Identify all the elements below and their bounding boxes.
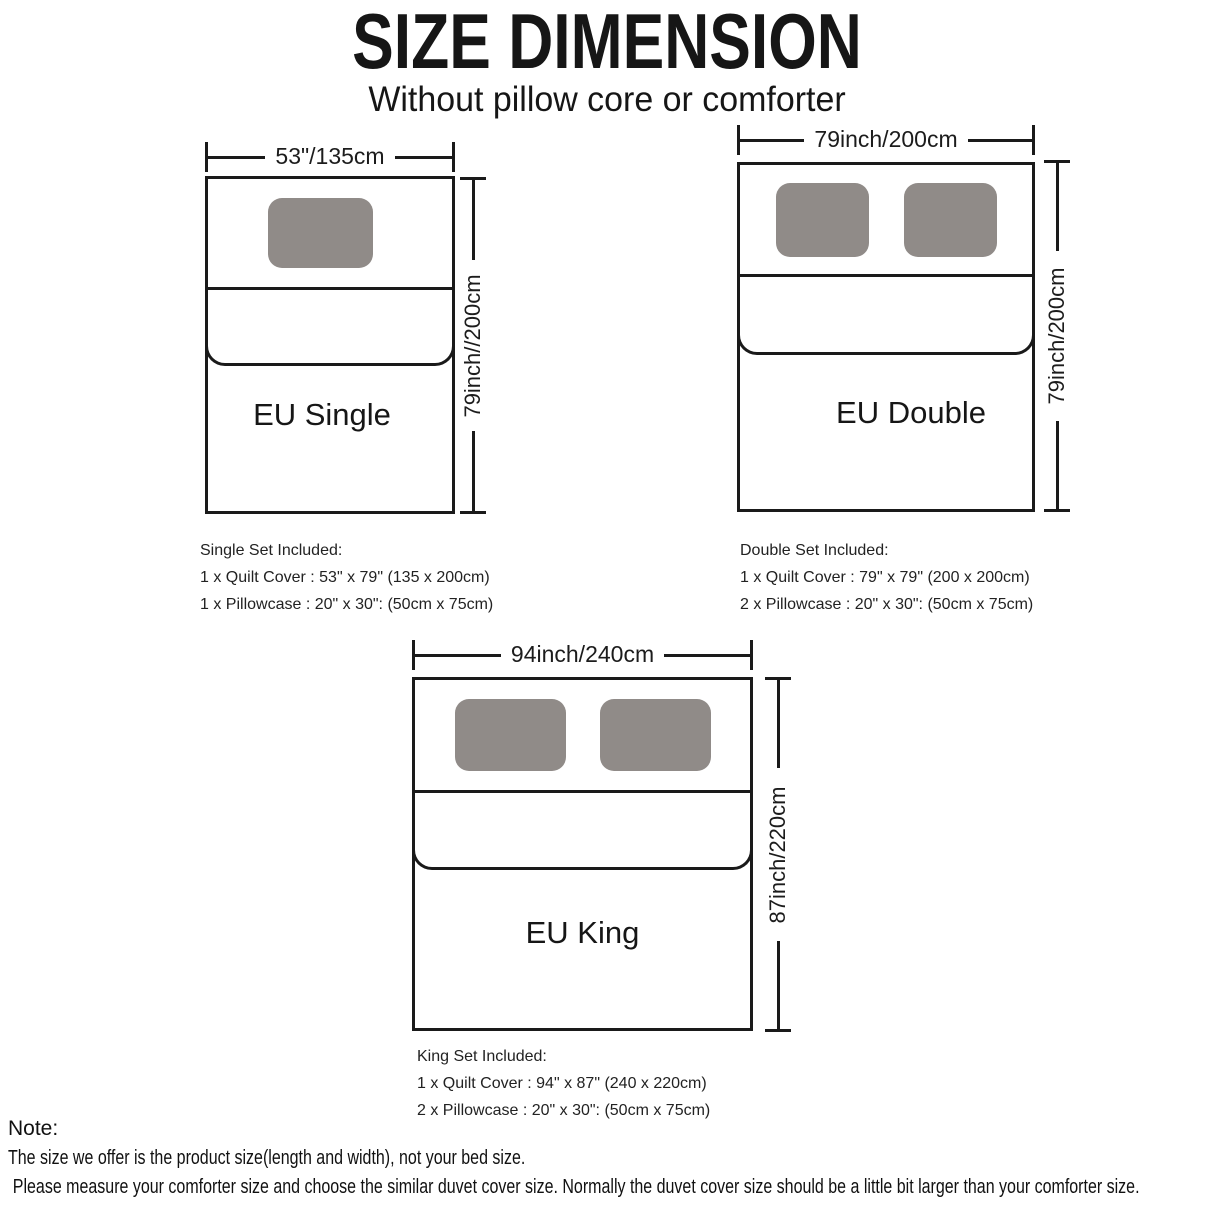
page-subtitle: Without pillow core or comforter — [18, 80, 1196, 120]
double-width-label: 79inch/200cm — [804, 128, 967, 151]
duvet-flap — [737, 277, 1035, 355]
double-height-label: 79inch/200cm — [1046, 268, 1068, 405]
dimension-line — [1056, 421, 1059, 509]
dimension-line — [777, 941, 780, 1029]
page-title: SIZE DIMENSION — [121, 2, 1092, 80]
king-width-dimension: 94inch/240cm — [412, 640, 753, 670]
dimension-line — [664, 654, 750, 657]
set-title: Double Set Included: — [740, 537, 1033, 564]
note-line: Please measure your comforter size and c… — [8, 1173, 973, 1202]
double-bed-diagram: EU Double — [737, 162, 1035, 512]
duvet-flap — [412, 793, 753, 870]
set-line: 1 x Quilt Cover : 79" x 79" (200 x 200cm… — [740, 564, 1033, 591]
set-line: 1 x Quilt Cover : 53" x 79" (135 x 200cm… — [200, 564, 493, 591]
king-bed-label: EU King — [415, 915, 750, 951]
dimension-line — [395, 156, 452, 159]
double-bed-label: EU Double — [765, 395, 1057, 431]
dimension-line — [208, 156, 265, 159]
double-pillow-area — [740, 165, 1032, 277]
set-title: King Set Included: — [417, 1043, 710, 1070]
king-height-dimension: 87inch/220cm — [763, 677, 793, 1032]
dimension-line — [740, 139, 804, 142]
pillow — [904, 183, 997, 257]
double-set-details: Double Set Included: 1 x Quilt Cover : 7… — [740, 537, 1033, 618]
note-title: Note: — [8, 1114, 1214, 1144]
dimension-line — [415, 654, 501, 657]
dimension-line — [1056, 163, 1059, 251]
pillow — [455, 699, 566, 771]
dimension-tick — [750, 640, 753, 670]
set-line: 2 x Pillowcase : 20" x 30": (50cm x 75cm… — [740, 591, 1033, 618]
double-width-dimension: 79inch/200cm — [737, 125, 1035, 155]
king-bed-diagram: EU King — [412, 677, 753, 1031]
king-width-label: 94inch/240cm — [501, 643, 664, 666]
duvet-flap — [205, 290, 455, 366]
double-height-dimension: 79inch/200cm — [1042, 160, 1072, 512]
king-height-label: 87inch/220cm — [767, 786, 789, 923]
dimension-tick — [460, 511, 486, 514]
single-height-dimension: 79inch//200cm — [458, 177, 488, 514]
king-pillow-area — [415, 680, 750, 793]
single-bed-diagram: EU Single — [205, 176, 455, 514]
single-height-label: 79inch//200cm — [462, 274, 484, 417]
pillow — [600, 699, 711, 771]
set-line: 1 x Quilt Cover : 94" x 87" (240 x 220cm… — [417, 1070, 710, 1097]
single-bed-label: EU Single — [200, 397, 444, 433]
dimension-tick — [765, 1029, 791, 1032]
set-title: Single Set Included: — [200, 537, 493, 564]
dimension-tick — [1032, 125, 1035, 155]
dimension-line — [472, 431, 475, 511]
single-width-dimension: 53"/135cm — [205, 142, 455, 172]
single-set-details: Single Set Included: 1 x Quilt Cover : 5… — [200, 537, 493, 618]
dimension-line — [777, 680, 780, 768]
dimension-line — [472, 180, 475, 260]
note-line: The size we offer is the product size(le… — [8, 1144, 973, 1173]
single-width-label: 53"/135cm — [265, 145, 394, 168]
pillow — [776, 183, 869, 257]
single-pillow-area — [208, 179, 452, 290]
king-set-details: King Set Included: 1 x Quilt Cover : 94"… — [417, 1043, 710, 1124]
dimension-tick — [1044, 509, 1070, 512]
dimension-line — [968, 139, 1032, 142]
note: Note: The size we offer is the product s… — [8, 1114, 1214, 1202]
header: SIZE DIMENSION Without pillow core or co… — [0, 0, 1214, 120]
pillow — [268, 198, 373, 268]
dimension-tick — [452, 142, 455, 172]
set-line: 1 x Pillowcase : 20" x 30": (50cm x 75cm… — [200, 591, 493, 618]
size-dimension-infographic: SIZE DIMENSION Without pillow core or co… — [0, 0, 1214, 1214]
